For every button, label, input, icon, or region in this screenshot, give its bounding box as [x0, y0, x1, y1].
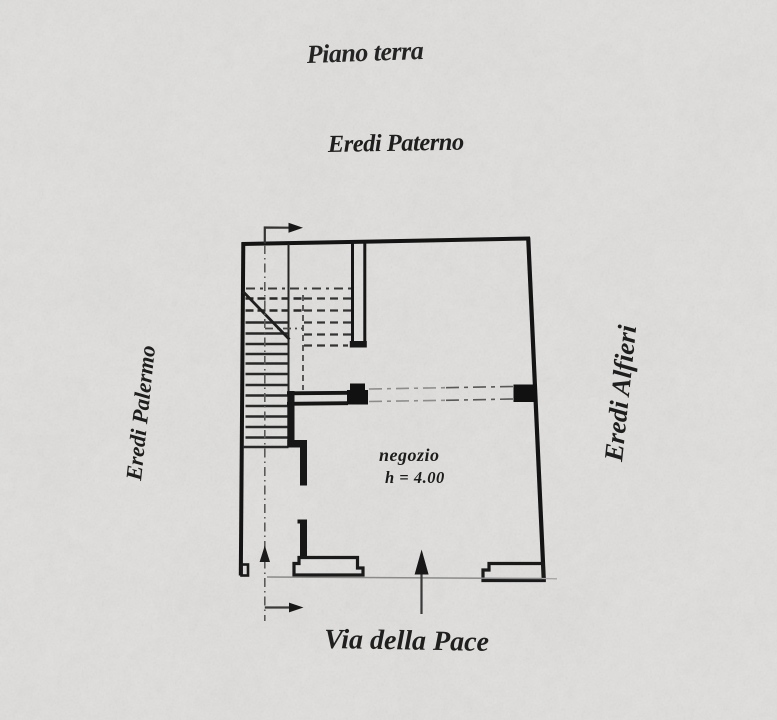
- svg-text:negozio: negozio: [379, 445, 440, 465]
- svg-text:h = 4.00: h = 4.00: [385, 468, 445, 487]
- svg-text:Piano terra: Piano terra: [305, 36, 424, 69]
- svg-text:Via della Pace: Via della Pace: [324, 624, 489, 658]
- svg-text:Eredi Paterno: Eredi Paterno: [327, 129, 464, 158]
